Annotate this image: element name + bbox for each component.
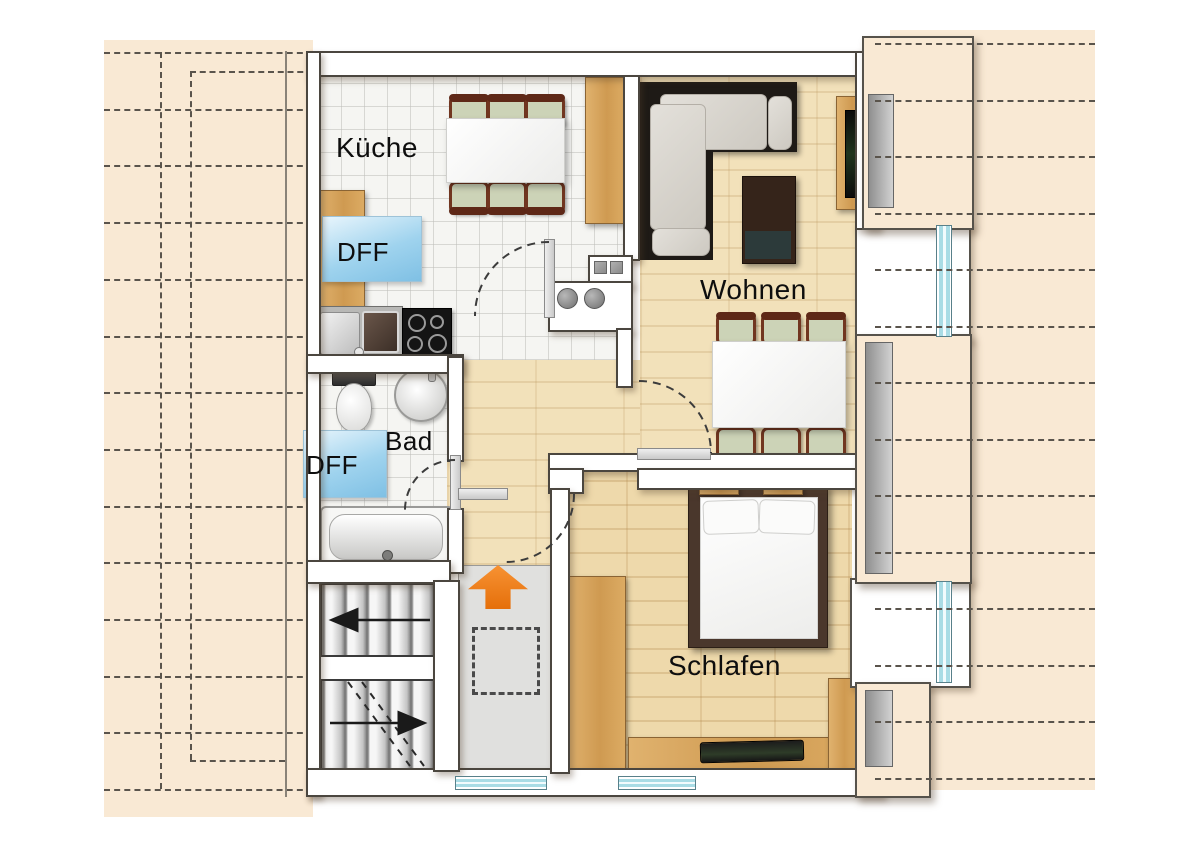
pillow (702, 499, 759, 535)
window (618, 776, 696, 790)
sofa-armrest (768, 96, 792, 150)
wall-bedroom-north (637, 468, 870, 490)
floor-plan: Küche DFF Bad DFF Wohnen Schlafen (0, 0, 1200, 848)
window-niche (865, 342, 893, 574)
chimney-vent (610, 261, 623, 274)
kitchen-sink (315, 306, 403, 360)
coffee-table-front (745, 231, 791, 259)
roof-line-horizontal (104, 52, 313, 54)
door-leaf-entrance (458, 488, 508, 500)
room-label-living: Wohnen (700, 274, 807, 306)
cooktop (402, 308, 452, 358)
window (455, 776, 547, 790)
shaft-dashed-outline (472, 627, 540, 695)
window-recess (850, 578, 971, 688)
pillow (758, 499, 815, 535)
roof-line-horizontal (190, 71, 313, 73)
roof-line-horizontal (104, 676, 313, 678)
roof-line-horizontal (104, 449, 313, 451)
window-niche (868, 94, 894, 208)
wall-west (306, 51, 321, 797)
bed (688, 484, 828, 648)
roof-line-horizontal (104, 279, 313, 281)
room-label-bath: Bad (385, 426, 433, 457)
roof-line-horizontal (104, 506, 313, 508)
washbasin (394, 368, 448, 422)
roof-line-vertical (160, 52, 162, 789)
roof-line-horizontal (104, 562, 313, 564)
chair (525, 181, 565, 214)
stairs-lower-flight (320, 679, 436, 773)
coffee-table (742, 176, 796, 264)
wall-north (306, 51, 884, 77)
roof-line-horizontal (190, 760, 285, 762)
roof-line-horizontal (104, 222, 313, 224)
wall-bath-east (447, 356, 464, 462)
kitchen-counter-right (585, 77, 625, 224)
wall-bath-north (306, 354, 464, 374)
wall-living-hall (616, 328, 633, 388)
skylight-label: DFF (337, 237, 389, 268)
stairs-landing-strip (316, 655, 437, 681)
wall-stairs-hall (433, 580, 460, 772)
room-label-bedroom: Schlafen (668, 650, 781, 682)
stairs-upper-flight (320, 583, 436, 659)
burner (428, 334, 447, 353)
kitchen-dining-table (446, 118, 565, 183)
roof-line-horizontal (104, 109, 313, 111)
roof-line-horizontal (104, 732, 313, 734)
roof-line-vertical (190, 71, 192, 760)
roof-line-horizontal (104, 619, 313, 621)
roof-line-horizontal (104, 392, 313, 394)
wall-south (306, 768, 884, 797)
burner (408, 314, 426, 332)
dresser (828, 678, 858, 772)
wall-bedroom-west (550, 488, 570, 774)
chair (449, 181, 489, 214)
window-niche (865, 690, 893, 767)
chair (487, 181, 527, 214)
roof-line-horizontal (104, 789, 313, 791)
building-outline-left (285, 51, 287, 797)
toilet (332, 370, 374, 432)
door-leaf-bath (450, 455, 461, 510)
window (936, 581, 952, 683)
roof-area-left (104, 40, 313, 817)
sofa-armrest (652, 228, 710, 256)
chimney-vent (594, 261, 607, 274)
toilet-bowl (336, 383, 372, 432)
door-leaf-kitchen (544, 239, 555, 318)
living-dining-table (712, 341, 846, 428)
wall-kitchen-living (623, 75, 640, 261)
wardrobe (568, 576, 626, 774)
wall-bath-south (306, 560, 451, 584)
chimney-flue (557, 288, 578, 309)
window-recess (855, 222, 971, 342)
burner (407, 336, 423, 352)
sofa-seat (650, 104, 706, 230)
roof-line-horizontal (104, 165, 313, 167)
skylight-label: DFF (306, 450, 358, 481)
laptop (700, 740, 805, 764)
chimney-flue (584, 288, 605, 309)
door-leaf-living (637, 448, 711, 460)
roof-line-horizontal (104, 336, 313, 338)
room-label-kitchen: Küche (336, 132, 418, 164)
burner (430, 315, 444, 329)
window (936, 225, 952, 337)
sink-basin-right (362, 311, 399, 353)
